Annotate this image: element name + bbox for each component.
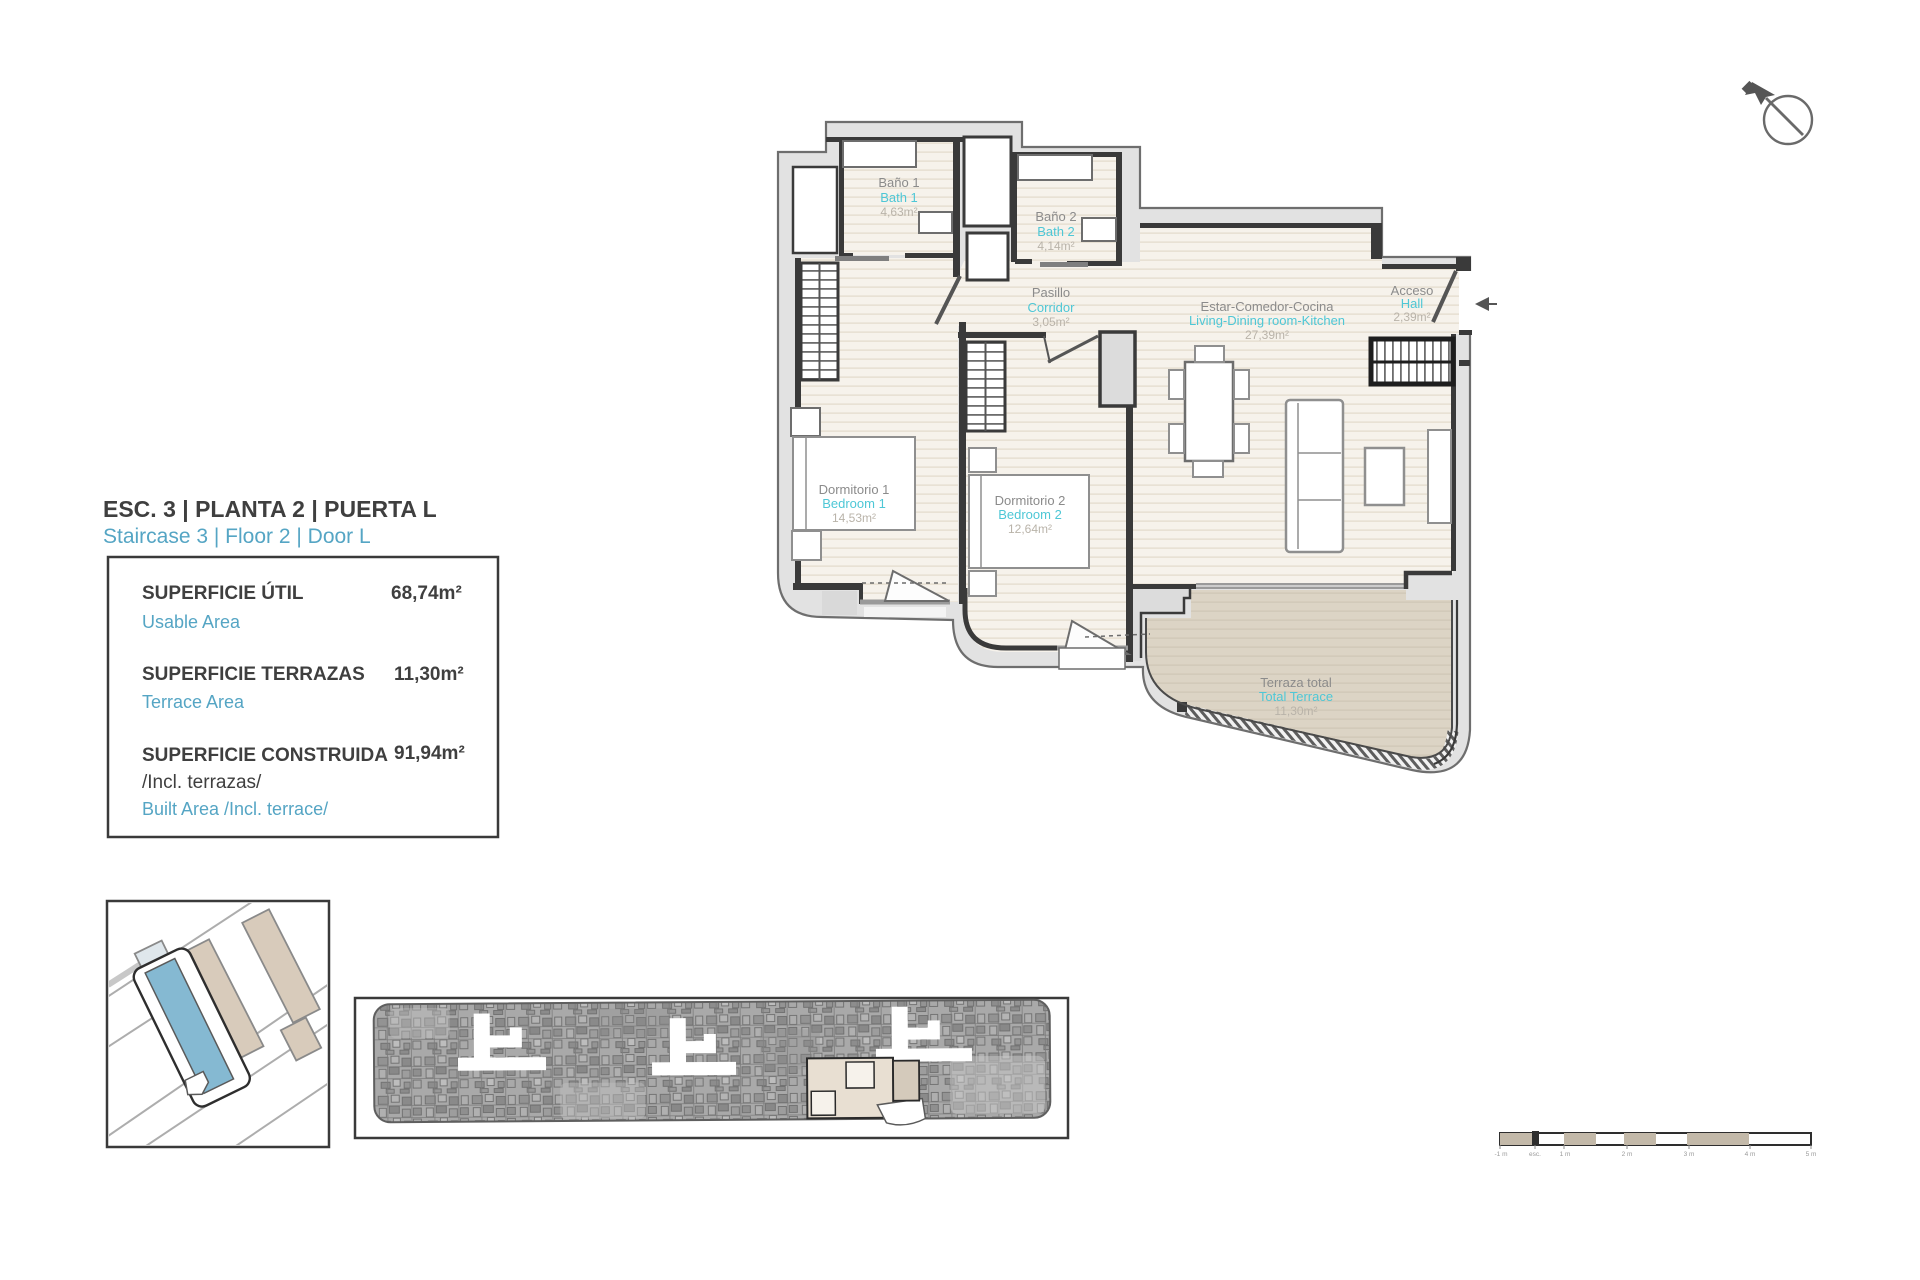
svg-text:3 m: 3 m — [1684, 1151, 1695, 1158]
svg-text:4,63m²: 4,63m² — [880, 205, 917, 219]
svg-text:esc.: esc. — [1529, 1151, 1541, 1158]
svg-text:2 m: 2 m — [1622, 1151, 1633, 1158]
svg-text:Bath 1: Bath 1 — [880, 190, 918, 205]
svg-text:SUPERFICIE ÚTIL: SUPERFICIE ÚTIL — [142, 582, 304, 604]
svg-text:1 m: 1 m — [1560, 1151, 1571, 1158]
svg-text:27,39m²: 27,39m² — [1245, 328, 1289, 342]
svg-text:14,53m²: 14,53m² — [832, 511, 876, 525]
svg-text:Hall: Hall — [1401, 296, 1424, 311]
svg-text:5 m: 5 m — [1806, 1151, 1817, 1158]
svg-text:Living-Dining room-Kitchen: Living-Dining room-Kitchen — [1189, 313, 1345, 328]
svg-text:Usable Area: Usable Area — [142, 612, 241, 632]
svg-text:Staircase 3 | Floor 2 | Door L: Staircase 3 | Floor 2 | Door L — [103, 525, 371, 548]
svg-text:2,39m²: 2,39m² — [1393, 310, 1430, 324]
svg-text:-1 m: -1 m — [1495, 1151, 1508, 1158]
svg-text:4 m: 4 m — [1745, 1151, 1756, 1158]
svg-text:11,30m²: 11,30m² — [1274, 704, 1317, 718]
svg-text:Pasillo: Pasillo — [1032, 285, 1070, 300]
svg-text:Corridor: Corridor — [1028, 300, 1076, 315]
svg-text:11,30m²: 11,30m² — [394, 664, 464, 685]
svg-text:ESC. 3 | PLANTA 2 | PUERTA L: ESC. 3 | PLANTA 2 | PUERTA L — [103, 496, 437, 522]
svg-text:Estar-Comedor-Cocina: Estar-Comedor-Cocina — [1201, 299, 1335, 314]
svg-text:12,64m²: 12,64m² — [1008, 522, 1052, 536]
svg-text:Baño 2: Baño 2 — [1035, 209, 1076, 224]
svg-text:SUPERFICIE CONSTRUIDA: SUPERFICIE CONSTRUIDA — [142, 745, 388, 766]
svg-text:Bedroom 1: Bedroom 1 — [822, 496, 886, 511]
svg-text:Dormitorio 2: Dormitorio 2 — [995, 493, 1066, 508]
svg-text:Bath 2: Bath 2 — [1037, 224, 1075, 239]
svg-text:Terraza total: Terraza total — [1260, 675, 1332, 690]
svg-text:Total Terrace: Total Terrace — [1259, 689, 1333, 704]
svg-text:4,14m²: 4,14m² — [1037, 239, 1074, 253]
svg-text:Baño 1: Baño 1 — [878, 175, 919, 190]
svg-text:Terrace Area: Terrace Area — [142, 692, 245, 712]
svg-text:68,74m²: 68,74m² — [391, 583, 462, 604]
svg-text:Bedroom 2: Bedroom 2 — [998, 507, 1062, 522]
svg-text:Dormitorio 1: Dormitorio 1 — [819, 482, 890, 497]
svg-text:91,94m²: 91,94m² — [394, 743, 465, 764]
svg-text:/Incl. terrazas/: /Incl. terrazas/ — [142, 772, 262, 793]
svg-text:3,05m²: 3,05m² — [1032, 315, 1069, 329]
svg-text:SUPERFICIE TERRAZAS: SUPERFICIE TERRAZAS — [142, 664, 365, 685]
svg-text:Built Area /Incl. terrace/: Built Area /Incl. terrace/ — [142, 799, 328, 819]
